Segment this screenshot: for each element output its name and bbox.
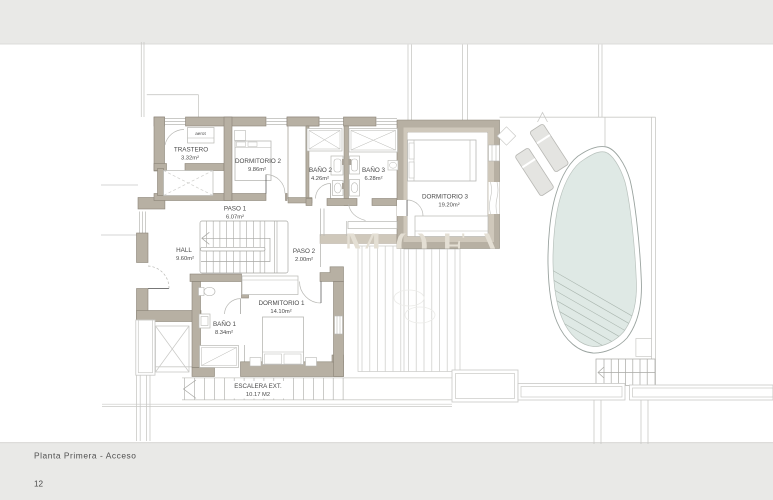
svg-text:DORMITORIO 3: DORMITORIO 3	[422, 194, 469, 201]
svg-text:9.60m²: 9.60m²	[176, 256, 194, 262]
svg-text:BAÑO 2: BAÑO 2	[309, 165, 333, 174]
svg-text:ESCALERA EXT.: ESCALERA EXT.	[234, 383, 282, 390]
svg-text:19.20m²: 19.20m²	[438, 203, 459, 209]
svg-text:TRASTERO: TRASTERO	[174, 147, 208, 154]
svg-text:6.07m²: 6.07m²	[226, 215, 244, 221]
svg-text:6.28m²: 6.28m²	[364, 176, 382, 182]
svg-text:BAÑO 1: BAÑO 1	[213, 319, 237, 328]
svg-text:Planta Primera - Acceso: Planta Primera - Acceso	[34, 451, 136, 461]
svg-text:2.00m²: 2.00m²	[295, 257, 313, 263]
svg-text:14.10m²: 14.10m²	[270, 309, 291, 315]
svg-text:BAÑO 3: BAÑO 3	[362, 165, 386, 174]
svg-text:12: 12	[34, 480, 44, 489]
svg-text:DORMITORIO 2: DORMITORIO 2	[235, 158, 282, 165]
svg-text:9.86m²: 9.86m²	[248, 167, 266, 173]
svg-text:aerot: aerot	[195, 131, 206, 136]
svg-text:DORMITORIO 1: DORMITORIO 1	[258, 300, 305, 307]
svg-text:PASO 1: PASO 1	[224, 206, 247, 213]
svg-text:10.17 M2: 10.17 M2	[246, 392, 270, 398]
svg-text:4.26m²: 4.26m²	[311, 176, 329, 182]
svg-text:3.32m²: 3.32m²	[181, 156, 199, 162]
svg-text:HALL: HALL	[176, 247, 192, 254]
svg-text:8.34m²: 8.34m²	[215, 330, 233, 336]
svg-text:PASO 2: PASO 2	[293, 248, 316, 255]
